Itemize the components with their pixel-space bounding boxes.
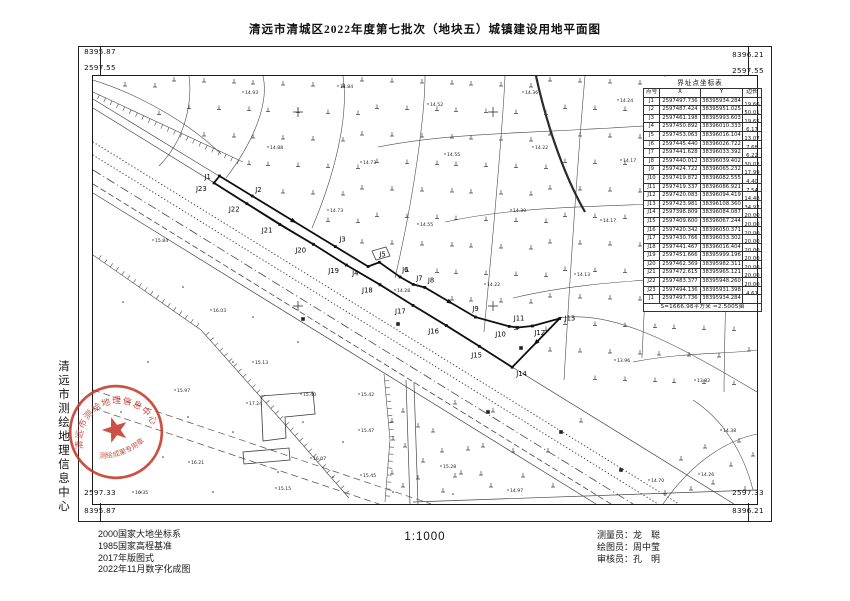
coordinate-row: J32597461.19838395993.60319.65 xyxy=(644,114,762,123)
area-summary: S=1666.98平方米 ≈2.5005亩 xyxy=(644,303,762,312)
corner-coord-bl-easting: 8395.87 xyxy=(77,506,123,515)
coordinate-row: J12597497.73638395934.284 xyxy=(644,295,762,304)
scanned-map-sheet: { "title": "清远市清城区2022年度第七批次（地块五）城镇建设用地平… xyxy=(0,0,850,601)
corner-coord-tr-easting: 8396.21 xyxy=(725,50,771,59)
page-title: 清远市清城区2022年度第七批次（地块五）城镇建设用地平面图 xyxy=(0,21,850,37)
coordinate-row: J132597423.98138396108.36034.97 xyxy=(644,200,762,209)
coordinate-row: J22597487.42438395951.02550.01 xyxy=(644,106,762,115)
coordinate-row: J42597450.89238396010.3336.17 xyxy=(644,123,762,132)
coordinate-table-footer: S=1666.98平方米 ≈2.5005亩 xyxy=(644,303,762,312)
coordinate-row: J92597424.72238396065.23217.99 xyxy=(644,166,762,175)
credit-draftsman: 绘图员：周中莹 xyxy=(597,542,660,554)
coordinate-row: J142597398.80938396084.08720.00 xyxy=(644,209,762,218)
credits-block: 测量员：龙 聪 绘图员：周中莹 审核员：孔 明 xyxy=(597,530,660,565)
datum-notes: 2000国家大地坐标系 1985国家高程基准 2017年版图式 2022年11月… xyxy=(98,529,190,576)
coordinate-table-title: 界址点坐标表 xyxy=(643,77,757,87)
coordinate-row: J102597419.87238396082.5554.40 xyxy=(644,174,762,183)
coordinate-row: J12597497.73638395934.28419.66 xyxy=(644,97,762,106)
coordinate-row: J232597494.13638395931.3984.61 xyxy=(644,286,762,295)
col-header-point-id: 点号 xyxy=(644,89,660,98)
corner-coord-tl-northing: 2597.55 xyxy=(77,63,123,72)
corner-coord-tr-northing: 2597.55 xyxy=(725,66,771,75)
col-header-edge-length: 边长 xyxy=(743,89,762,98)
coordinate-row: J202597462.36938395982.31120.00 xyxy=(644,260,762,269)
coordinate-row: J162597420.34238396050.37120.00 xyxy=(644,226,762,235)
seal-star-icon xyxy=(99,413,131,444)
note-line-3: 2017年版图式 xyxy=(98,553,190,565)
coordinate-row: J192597451.66638395999.19620.00 xyxy=(644,252,762,261)
coordinate-row: J82597440.01238396039.40230.02 xyxy=(644,157,762,166)
coordinate-row: J212597472.61538395965.12120.00 xyxy=(644,269,762,278)
coordinate-row: J72597441.62838396033.3926.22 xyxy=(644,149,762,158)
coordinate-table: 界址点坐标表 点号 X Y 边长 J12597497.73638395934.2… xyxy=(643,77,757,312)
coordinate-table-header: 点号 X Y 边长 xyxy=(644,89,762,98)
col-header-x: X xyxy=(660,89,701,98)
coordinate-row: J172597430.76638396033.30220.00 xyxy=(644,235,762,244)
seal-ring-text: 清远市测绘地理信息中心 xyxy=(61,383,160,452)
coordinate-row: J152597409.60038396067.24420.00 xyxy=(644,217,762,226)
map-scale: 1:1000 xyxy=(360,531,490,543)
coordinate-table-body: J12597497.73638395934.28419.66J22597487.… xyxy=(644,97,762,303)
coordinate-row: J112597419.33738396086.9217.54 xyxy=(644,183,762,192)
credit-reviewer: 审核员：孔 明 xyxy=(597,554,660,566)
note-line-4: 2022年11月数字化成图 xyxy=(98,564,190,576)
note-line-2: 1985国家高程基准 xyxy=(98,541,190,553)
credit-surveyor: 测量员：龙 聪 xyxy=(597,530,660,542)
corner-coord-tl-easting: 8395.87 xyxy=(77,47,123,56)
coordinate-row: J182597441.46738396016.40420.00 xyxy=(644,243,762,252)
coordinate-row: J122597420.08338396094.41914.48 xyxy=(644,192,762,201)
col-header-y: Y xyxy=(701,89,743,98)
coordinate-row: J222597483.37738395948.26020.00 xyxy=(644,278,762,287)
coordinate-row: J52597453.06338396016.10413.07 xyxy=(644,131,762,140)
seal-banner-text: 测绘成果专用章 xyxy=(96,435,148,464)
coordinate-row: J62597445.44038396026.7227.68 xyxy=(644,140,762,149)
corner-coord-br-easting: 8396.21 xyxy=(725,506,771,515)
note-line-1: 2000国家大地坐标系 xyxy=(98,529,190,541)
